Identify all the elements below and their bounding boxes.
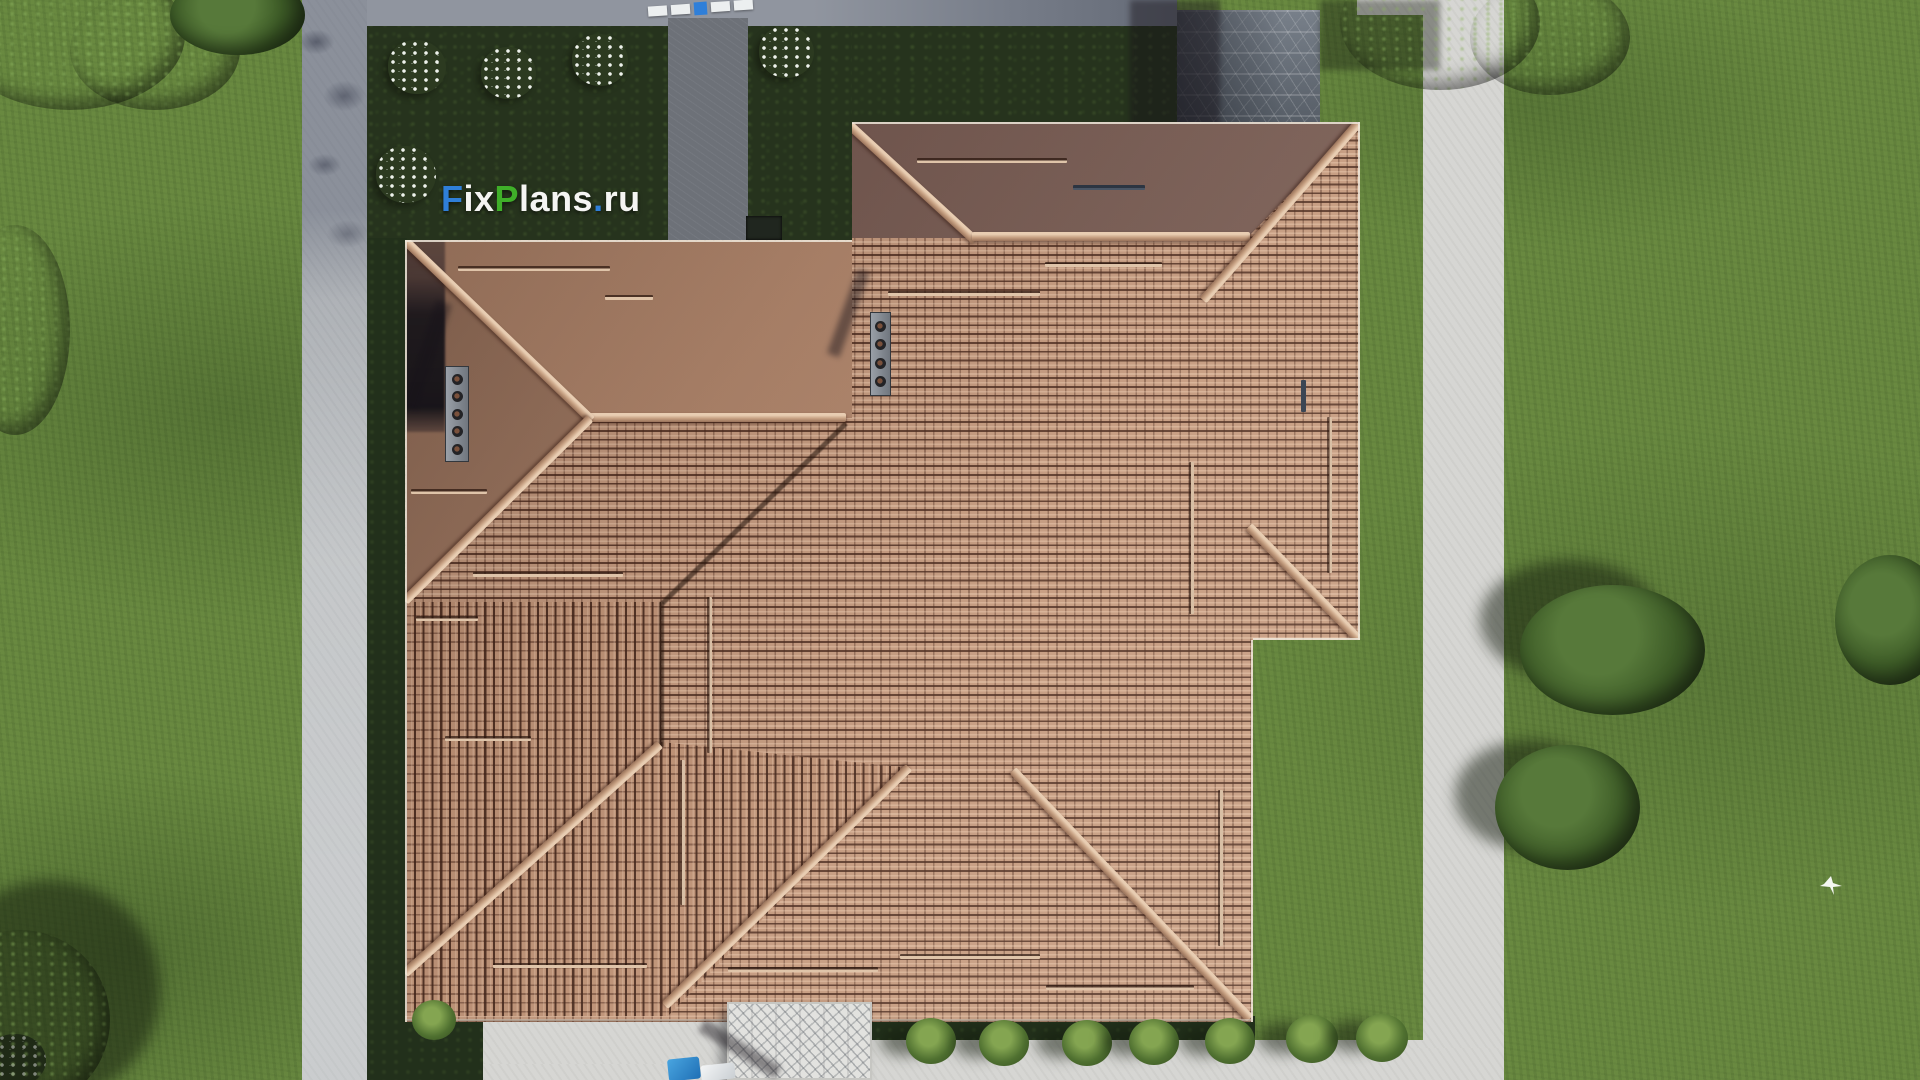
vent-hole (452, 444, 463, 455)
flower-bush (572, 34, 628, 86)
shrub (906, 1018, 956, 1064)
gate-slab (734, 0, 754, 11)
snow-guard-bar (1301, 380, 1306, 412)
watermark-segment: ix (464, 178, 495, 219)
vent-hole (452, 391, 463, 402)
snow-guard-bar (605, 295, 653, 300)
snow-guard-bar (473, 572, 623, 577)
vent-hole (875, 339, 886, 350)
snow-guard-bar (1073, 185, 1145, 190)
snow-guard-bar (445, 736, 531, 741)
eave-fascia (1251, 640, 1253, 1022)
eave-fascia (405, 240, 852, 242)
snow-guard-bar (1045, 262, 1162, 267)
gate-slab (711, 1, 731, 12)
path-top-strip (367, 0, 1177, 26)
snow-guard-bar (1327, 417, 1332, 573)
eave-fascia (1253, 638, 1360, 640)
watermark-segment: ru (604, 178, 641, 219)
snow-guard-bar (493, 963, 647, 968)
white-car (700, 1062, 735, 1080)
roof-valley-vertical (659, 602, 664, 747)
path-right-vertical (1423, 0, 1504, 1080)
eave-fascia (405, 240, 407, 1022)
hedge-strip-left (367, 238, 407, 1050)
watermark-segment: P (495, 178, 520, 219)
tree-shadow-over-steps (1130, 0, 1220, 130)
walkway-to-entrance (668, 18, 748, 240)
entrance-canopy-pergola (727, 1002, 872, 1080)
house-roof (405, 122, 1360, 1022)
flower-bush (388, 40, 446, 94)
gate-slab (648, 5, 668, 16)
shrub (1129, 1019, 1179, 1065)
entrance-mat (746, 216, 782, 240)
roof-ridge-main (588, 413, 846, 422)
watermark-segment: F (441, 178, 464, 219)
tree-shadow-on-path (302, 0, 367, 300)
snow-guard-bar (416, 616, 478, 621)
shrub (1356, 1014, 1408, 1062)
tree-canopy (1495, 745, 1640, 870)
vent-hole (452, 409, 463, 420)
watermark-segment: . (593, 178, 604, 219)
roof-vent-stack (870, 312, 891, 396)
eave-fascia (1358, 122, 1360, 640)
snow-guard-bar (458, 266, 610, 271)
aerial-house-render: FixPlans.ru (0, 0, 1920, 1080)
watermark-segment: lans (519, 178, 593, 219)
snow-guard-bar (411, 489, 487, 494)
shrub (979, 1020, 1029, 1066)
snow-guard-bar (707, 597, 712, 753)
snow-guard-bar (900, 954, 1040, 959)
tree-canopy (1520, 585, 1705, 715)
flower-bush (481, 47, 536, 99)
vent-hole (875, 376, 886, 387)
bird-icon (1818, 874, 1846, 896)
blue-car (667, 1056, 701, 1080)
roof-vent-stack (445, 366, 469, 462)
snow-guard-bar (1046, 985, 1194, 990)
roof-ridge-wing (972, 232, 1250, 241)
snow-guard-bar (917, 158, 1067, 163)
vent-hole (875, 358, 886, 369)
snow-guard-bar (728, 967, 878, 972)
shrub-light (412, 1000, 456, 1040)
snow-guard-bar (888, 291, 1040, 296)
gate-slab (671, 4, 691, 15)
snow-guard-bar (680, 760, 685, 905)
watermark-fixplans: FixPlans.ru (441, 181, 641, 217)
snow-guard-bar (1218, 790, 1223, 946)
blue-gate-element (694, 1, 708, 15)
vent-hole (452, 374, 463, 385)
snow-guard-bar (1189, 462, 1194, 614)
flower-bush (376, 146, 436, 203)
shrub (1205, 1018, 1255, 1064)
eave-fascia (850, 122, 1360, 124)
vent-hole (452, 426, 463, 437)
flower-bush (759, 26, 814, 78)
vent-hole (875, 321, 886, 332)
